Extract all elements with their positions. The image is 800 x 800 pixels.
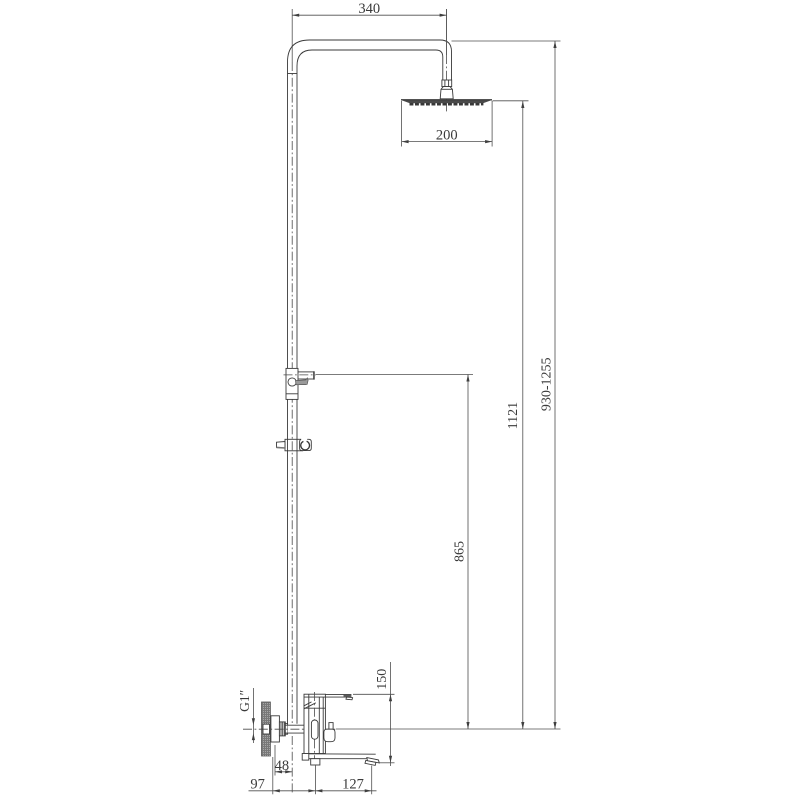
svg-text:G1″: G1″: [237, 690, 252, 712]
svg-text:97: 97: [250, 777, 265, 793]
svg-text:930-1255: 930-1255: [540, 357, 555, 411]
svg-text:340: 340: [358, 1, 380, 17]
svg-text:1121: 1121: [506, 402, 521, 429]
svg-text:865: 865: [453, 541, 468, 562]
svg-text:150: 150: [375, 669, 390, 690]
svg-text:127: 127: [342, 776, 364, 792]
svg-text:200: 200: [436, 128, 458, 144]
svg-text:48: 48: [275, 758, 290, 774]
